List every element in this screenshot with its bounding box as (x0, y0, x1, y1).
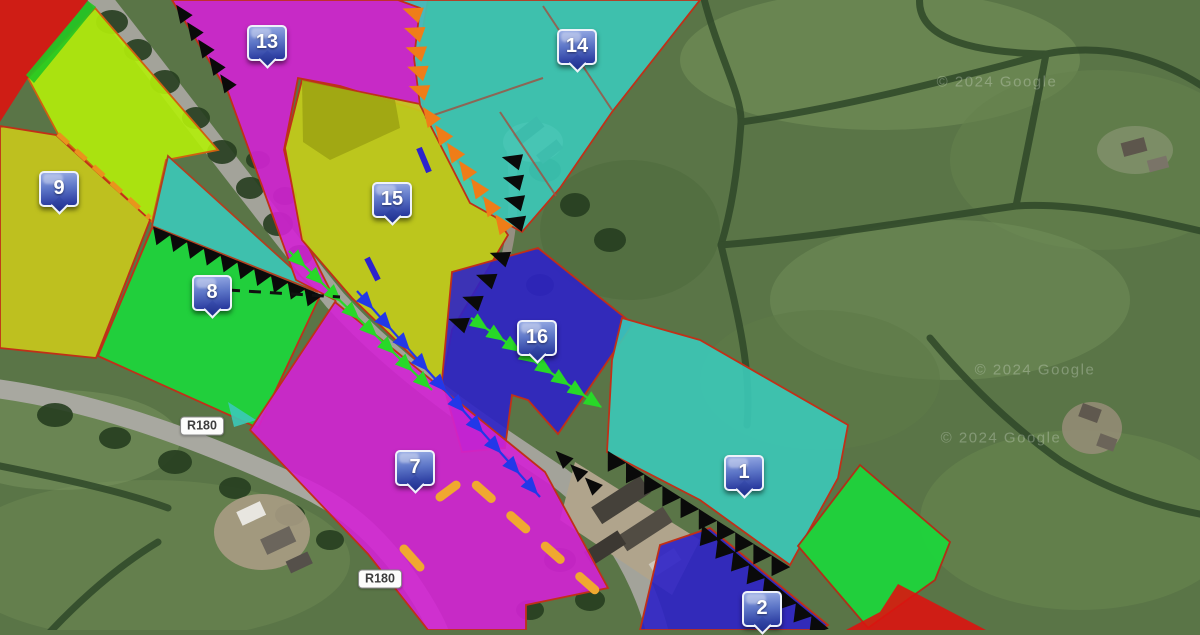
map-canvas[interactable]: 1314915816712R180R180© 2024 Google© 2024… (0, 0, 1200, 630)
farmstead-right-edge (1062, 402, 1122, 454)
farmstead-top-right (1097, 126, 1173, 174)
